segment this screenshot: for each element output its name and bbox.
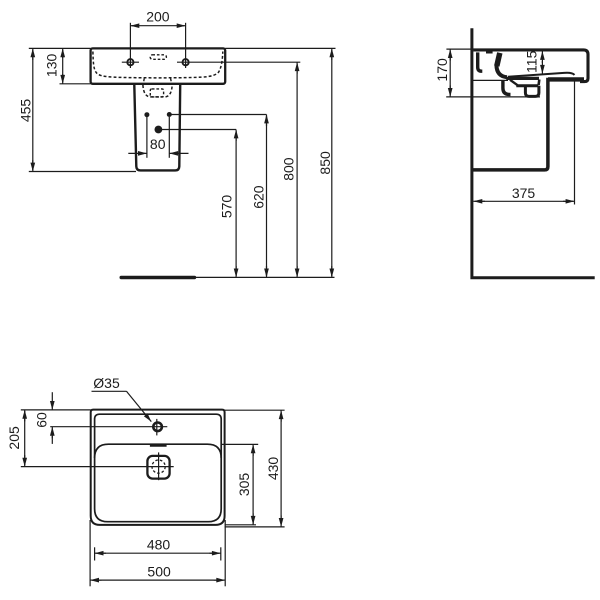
svg-text:850: 850	[317, 151, 333, 175]
svg-text:205: 205	[6, 426, 22, 450]
svg-text:375: 375	[512, 185, 536, 201]
svg-text:170: 170	[434, 58, 450, 82]
svg-text:200: 200	[146, 8, 170, 24]
svg-text:305: 305	[236, 473, 252, 497]
svg-text:430: 430	[265, 457, 281, 481]
svg-text:480: 480	[147, 537, 171, 553]
svg-text:455: 455	[17, 99, 33, 123]
svg-text:80: 80	[150, 136, 166, 152]
svg-text:620: 620	[251, 185, 267, 209]
svg-text:130: 130	[44, 54, 60, 78]
svg-text:Ø35: Ø35	[93, 375, 120, 391]
svg-text:570: 570	[219, 195, 235, 219]
svg-text:800: 800	[281, 157, 297, 181]
svg-text:500: 500	[147, 564, 171, 580]
svg-text:115: 115	[524, 50, 540, 73]
svg-text:60: 60	[34, 412, 50, 428]
